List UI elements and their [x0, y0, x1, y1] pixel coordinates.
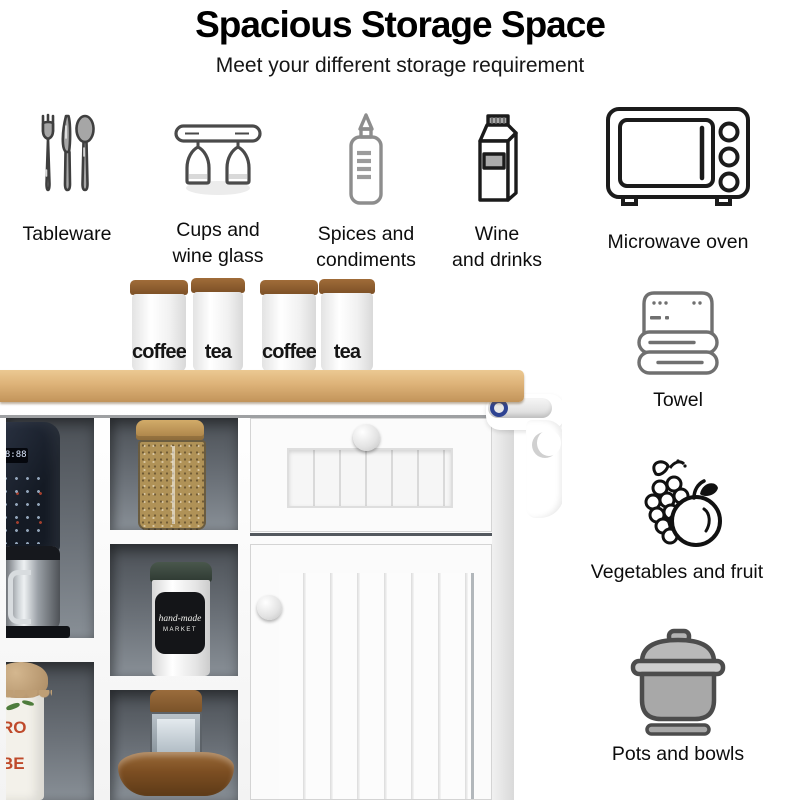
microwave-icon	[605, 106, 751, 212]
coffee-machine-display: 88:88	[6, 448, 28, 463]
feature-vegetables: Vegetables and fruit	[578, 452, 776, 586]
product-infographic: Spacious Storage Space Meet your differe…	[0, 0, 800, 800]
feature-label-towel: Towel	[653, 388, 703, 414]
coffee-canister-2: coffee	[262, 280, 316, 372]
tea-canister-2: tea	[321, 279, 373, 372]
kitchen-cart-photo: coffee tea coffee tea	[0, 278, 562, 800]
canister-wood-lid	[130, 280, 188, 295]
feature-wine: Wine and drinks	[430, 114, 564, 273]
canister-wood-lid	[191, 278, 245, 293]
folded-towel-icon	[636, 290, 720, 378]
canister-body: coffee	[132, 294, 186, 372]
canister-wood-lid	[319, 279, 375, 294]
cubby-grain-jar	[110, 418, 238, 530]
burlap-frill	[6, 690, 52, 702]
cutlery-icon	[36, 112, 98, 196]
drawer-knob	[353, 424, 380, 451]
coffee-machine-buttons	[6, 472, 46, 544]
canister-label: tea	[321, 341, 373, 364]
coffee-machine: 88:88	[6, 422, 60, 552]
drawer-door-gap	[250, 533, 492, 536]
cabinet-drawer	[250, 418, 492, 532]
glass-jar-lid	[150, 690, 202, 712]
feature-label-cups: Cups and wine glass	[172, 218, 263, 269]
wood-countertop	[0, 370, 524, 402]
carafe-handle	[8, 570, 31, 624]
wine-glass-rack-icon	[172, 118, 264, 198]
feature-label-microwave: Microwave oven	[608, 230, 749, 256]
coffee-machine-base	[6, 626, 70, 638]
grain-jar-lid	[136, 420, 204, 440]
towel-rack	[486, 390, 562, 530]
canister-body: coffee	[262, 294, 316, 372]
drink-carton-icon	[471, 114, 523, 204]
canister-label: coffee	[262, 341, 316, 364]
towel-rack-hook	[532, 432, 558, 458]
cooking-pot-icon	[625, 628, 731, 736]
canister-label: tea	[193, 341, 243, 364]
feature-label-pots: Pots and bowls	[612, 742, 744, 768]
tea-canister-1: tea	[193, 278, 243, 372]
handmade-label: hand-made MARKET	[155, 592, 205, 654]
canister-label: coffee	[132, 341, 186, 364]
feature-label-tableware: Tableware	[23, 222, 112, 248]
feature-label-spices: Spices and condiments	[316, 222, 416, 273]
canister-body: tea	[321, 293, 373, 372]
grain-jar	[138, 440, 206, 530]
coffee-canister-1: coffee	[132, 280, 186, 372]
squeeze-bottle-icon	[342, 112, 390, 208]
handmade-canister-lid	[150, 562, 212, 582]
bean-jar: RO BE	[6, 692, 44, 800]
page-title: Spacious Storage Space	[0, 4, 800, 46]
drawer-beadboard-panel	[287, 448, 453, 508]
page-subtitle: Meet your different storage requirement	[0, 54, 800, 78]
handmade-canister: hand-made MARKET	[152, 580, 210, 676]
canister-body: tea	[193, 292, 243, 372]
door-beadboard-panel	[279, 573, 475, 799]
cubby-bean-jar: RO BE	[6, 662, 94, 800]
feature-tableware: Tableware	[0, 112, 134, 248]
steel-carafe	[6, 546, 60, 632]
feature-label-wine: Wine and drinks	[452, 222, 542, 273]
handmade-label-line1: hand-made	[159, 614, 202, 624]
canister-wood-lid	[260, 280, 318, 295]
bean-jar-text-2: BE	[6, 754, 25, 774]
feature-towel: Towel	[611, 290, 745, 414]
cabinet-door	[250, 544, 492, 800]
feature-microwave: Microwave oven	[598, 106, 758, 256]
feature-spices: Spices and condiments	[299, 112, 433, 273]
wooden-bowl	[118, 752, 234, 796]
cubby-bowl	[110, 690, 238, 800]
feature-pots: Pots and bowls	[601, 628, 755, 768]
door-knob	[257, 595, 282, 620]
bean-jar-text-1: RO	[6, 718, 27, 738]
handmade-label-line2: MARKET	[163, 627, 197, 633]
grapes-and-apple-icon	[630, 452, 724, 552]
feature-cups: Cups and wine glass	[151, 118, 285, 269]
cubby-coffee-machine: 88:88	[6, 418, 94, 638]
cubby-handmade-canister: hand-made MARKET	[110, 544, 238, 676]
feature-label-vegetables: Vegetables and fruit	[591, 560, 763, 586]
leaf-decoration	[6, 702, 20, 711]
